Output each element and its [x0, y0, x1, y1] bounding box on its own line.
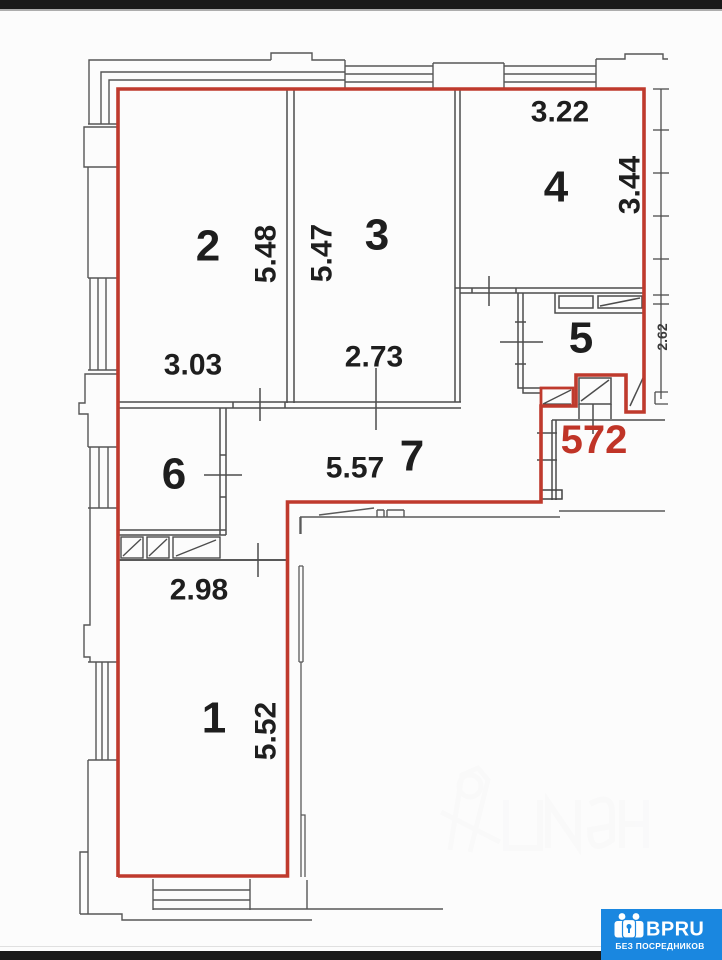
svg-text:5: 5 [569, 314, 593, 363]
svg-text:572: 572 [561, 418, 628, 462]
svg-text:3.22: 3.22 [531, 96, 589, 129]
svg-text:6: 6 [162, 450, 186, 499]
svg-text:2.73: 2.73 [345, 341, 403, 374]
svg-text:3: 3 [365, 211, 389, 260]
svg-text:2.98: 2.98 [170, 574, 228, 607]
svg-text:5.47: 5.47 [306, 224, 339, 282]
svg-text:3.03: 3.03 [164, 349, 222, 382]
svg-text:1: 1 [202, 694, 226, 743]
svg-text:BPRU: BPRU [646, 919, 704, 941]
svg-text:5.57: 5.57 [326, 452, 384, 485]
svg-text:2: 2 [196, 222, 220, 271]
svg-text:5.48: 5.48 [250, 225, 283, 283]
svg-text:4: 4 [544, 163, 569, 212]
svg-text:3.44: 3.44 [614, 155, 647, 214]
svg-text:5.52: 5.52 [250, 702, 283, 760]
svg-text:БЕЗ ПОСРЕДНИКОВ: БЕЗ ПОСРЕДНИКОВ [615, 941, 704, 951]
svg-text:2.62: 2.62 [654, 323, 670, 350]
svg-text:7: 7 [400, 432, 424, 481]
